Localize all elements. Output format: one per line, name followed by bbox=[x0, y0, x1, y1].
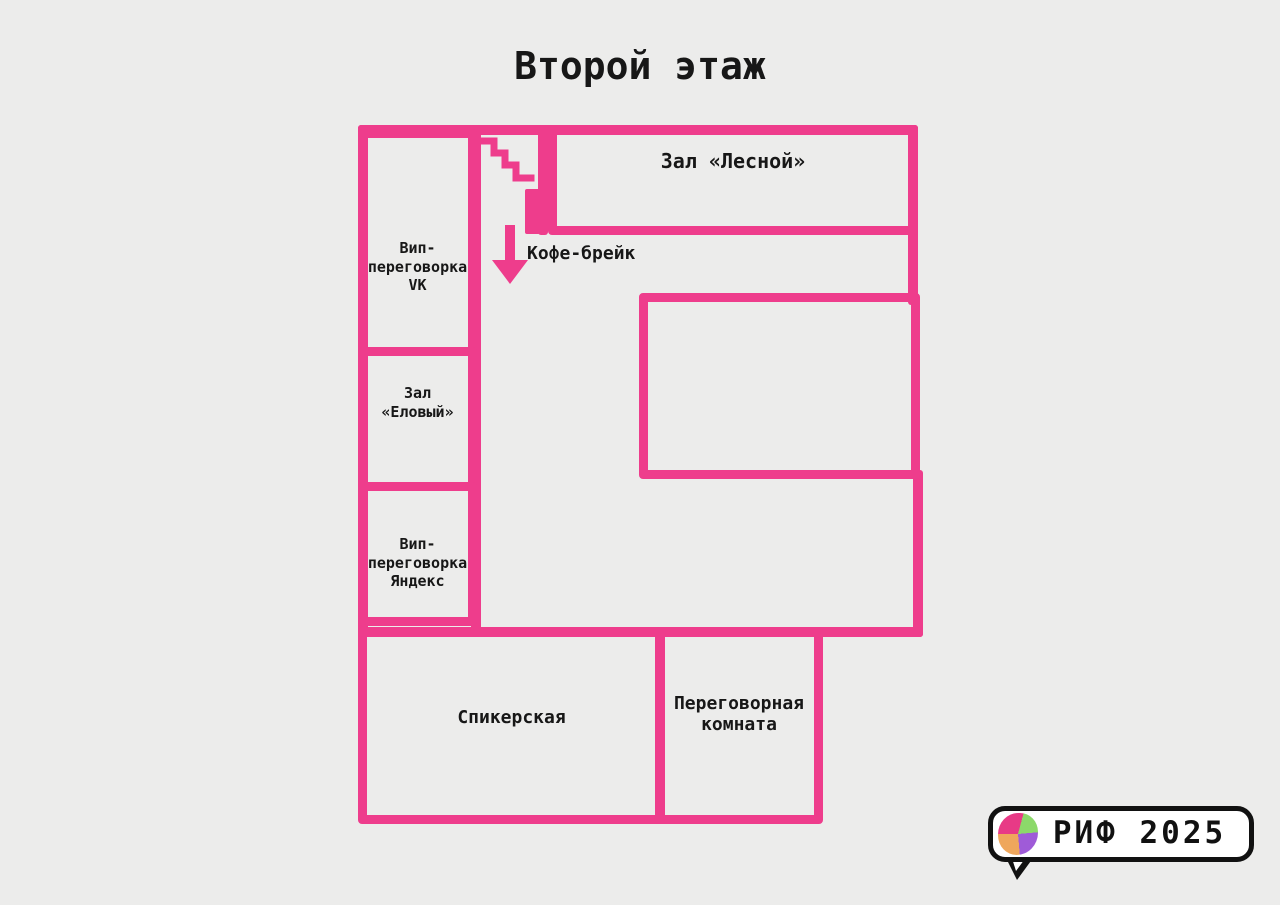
down-arrow-icon bbox=[488, 222, 532, 286]
coffee-break-label: Кофе-брейк bbox=[527, 243, 635, 264]
room-zal-lesnoy-label: Зал «Лесной» bbox=[548, 149, 918, 173]
floor-plan-canvas: Второй этаж Вип- переговорка VK Зал «Ело… bbox=[0, 0, 1280, 905]
stairs-icon bbox=[474, 132, 536, 190]
logo-speech-bubble: РИФ 2025 bbox=[988, 806, 1254, 862]
rif-2025-logo: РИФ 2025 bbox=[986, 804, 1258, 890]
room-zal-elovy-label: Зал «Еловый» bbox=[358, 384, 477, 421]
room-vip-vk-label: Вип- переговорка VK bbox=[358, 239, 477, 295]
room-peregovornaya-label: Переговорная комната bbox=[655, 694, 823, 735]
wall-right-lower bbox=[913, 470, 923, 637]
page-title: Второй этаж bbox=[0, 44, 1280, 88]
room-vip-yandex-label: Вип- переговорка Яндекс bbox=[358, 535, 477, 591]
logo-text: РИФ 2025 bbox=[1038, 815, 1241, 854]
unlabeled-room-box bbox=[639, 293, 920, 479]
room-spikerskaya-label: Спикерская bbox=[358, 707, 665, 728]
pixel-color-wheel-icon bbox=[998, 813, 1038, 855]
room-zal-lesnoy-box bbox=[548, 125, 918, 235]
